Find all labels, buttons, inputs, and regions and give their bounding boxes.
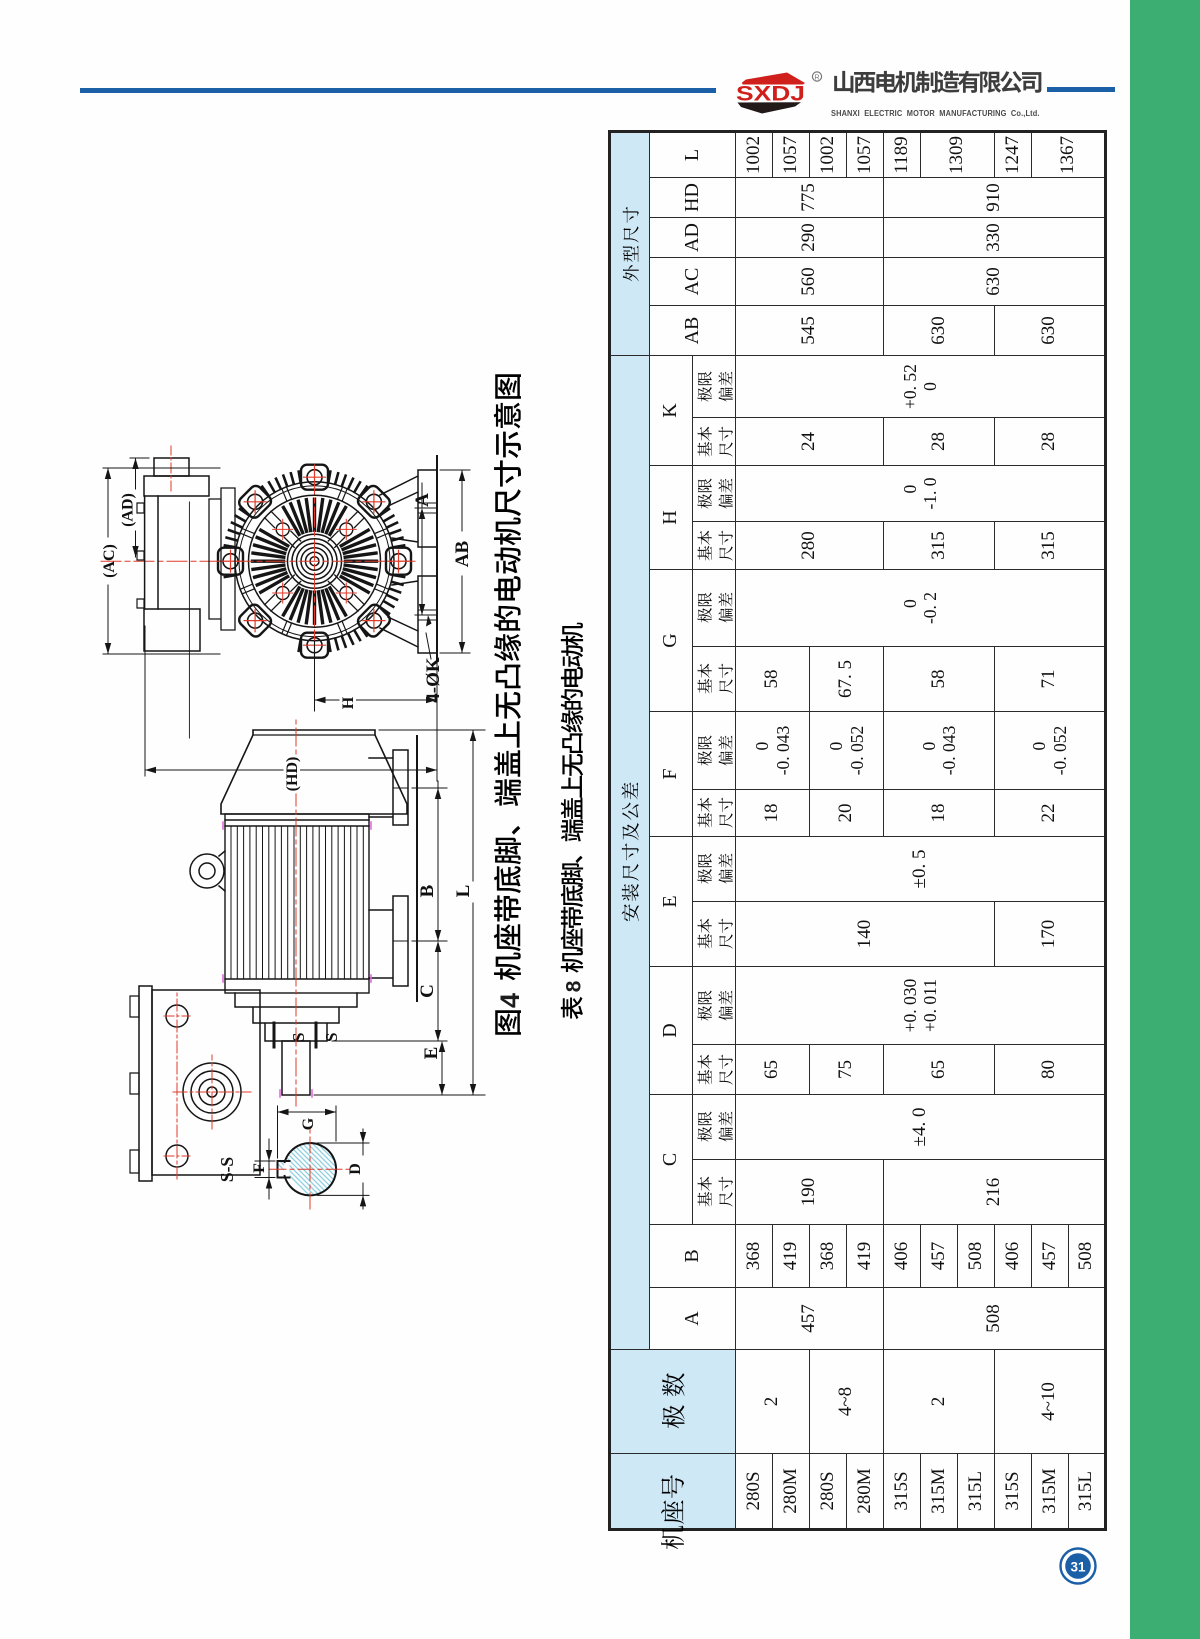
svg-text:8: 8 <box>563 980 586 992</box>
svg-text:C: C <box>417 984 438 998</box>
svg-text:SXDJ: SXDJ <box>736 82 805 106</box>
svg-text:G: G <box>300 1117 317 1130</box>
svg-text:4-ØK: 4-ØK <box>423 657 444 703</box>
svg-text:AB: AB <box>452 540 473 567</box>
svg-text:(HD): (HD) <box>284 757 301 792</box>
svg-text:R: R <box>814 75 819 82</box>
svg-text:B: B <box>417 884 438 897</box>
svg-text:4: 4 <box>495 993 525 1008</box>
svg-text:H: H <box>340 696 357 709</box>
svg-text:L: L <box>453 885 474 898</box>
svg-text:S-S: S-S <box>217 1157 237 1182</box>
svg-text:(AD): (AD) <box>120 493 137 527</box>
svg-text:(AC): (AC) <box>101 544 118 578</box>
svg-text:D: D <box>347 1163 364 1175</box>
svg-text:31: 31 <box>1070 1560 1086 1575</box>
svg-text:A: A <box>412 493 433 507</box>
svg-text:S: S <box>289 1033 308 1042</box>
svg-text:E: E <box>421 1047 442 1060</box>
svg-text:F: F <box>251 1163 268 1173</box>
